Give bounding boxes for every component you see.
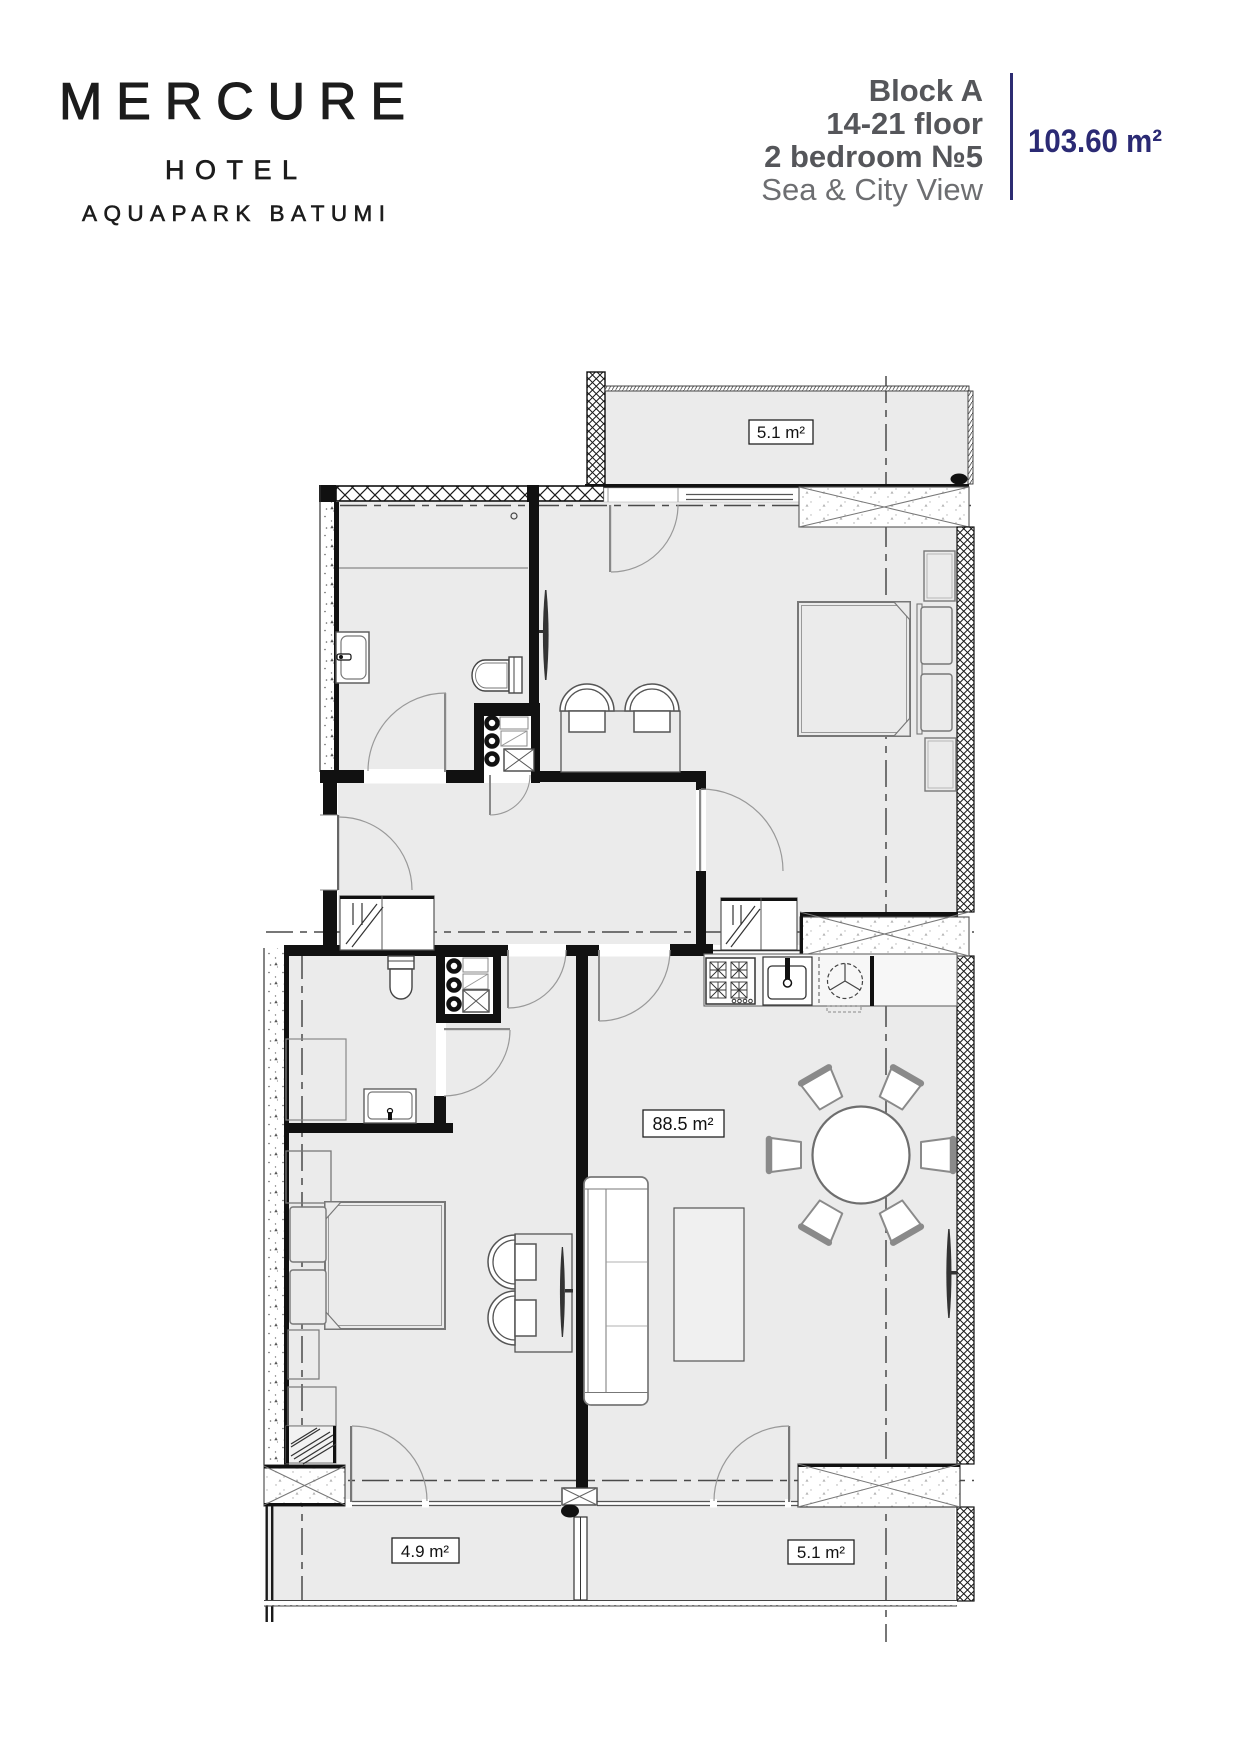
svg-text:103.60 m²: 103.60 m² <box>1028 123 1162 159</box>
svg-text:2 bedroom №5: 2 bedroom №5 <box>764 139 983 174</box>
svg-text:Block A: Block A <box>869 73 983 108</box>
svg-text:88.5 m²: 88.5 m² <box>652 1114 713 1134</box>
svg-text:4.9 m²: 4.9 m² <box>401 1542 450 1561</box>
svg-text:5.1 m²: 5.1 m² <box>757 423 806 442</box>
svg-text:14-21 floor: 14-21 floor <box>826 106 983 141</box>
svg-text:Sea & City View: Sea & City View <box>761 172 983 207</box>
svg-text:5.1 m²: 5.1 m² <box>797 1543 846 1562</box>
